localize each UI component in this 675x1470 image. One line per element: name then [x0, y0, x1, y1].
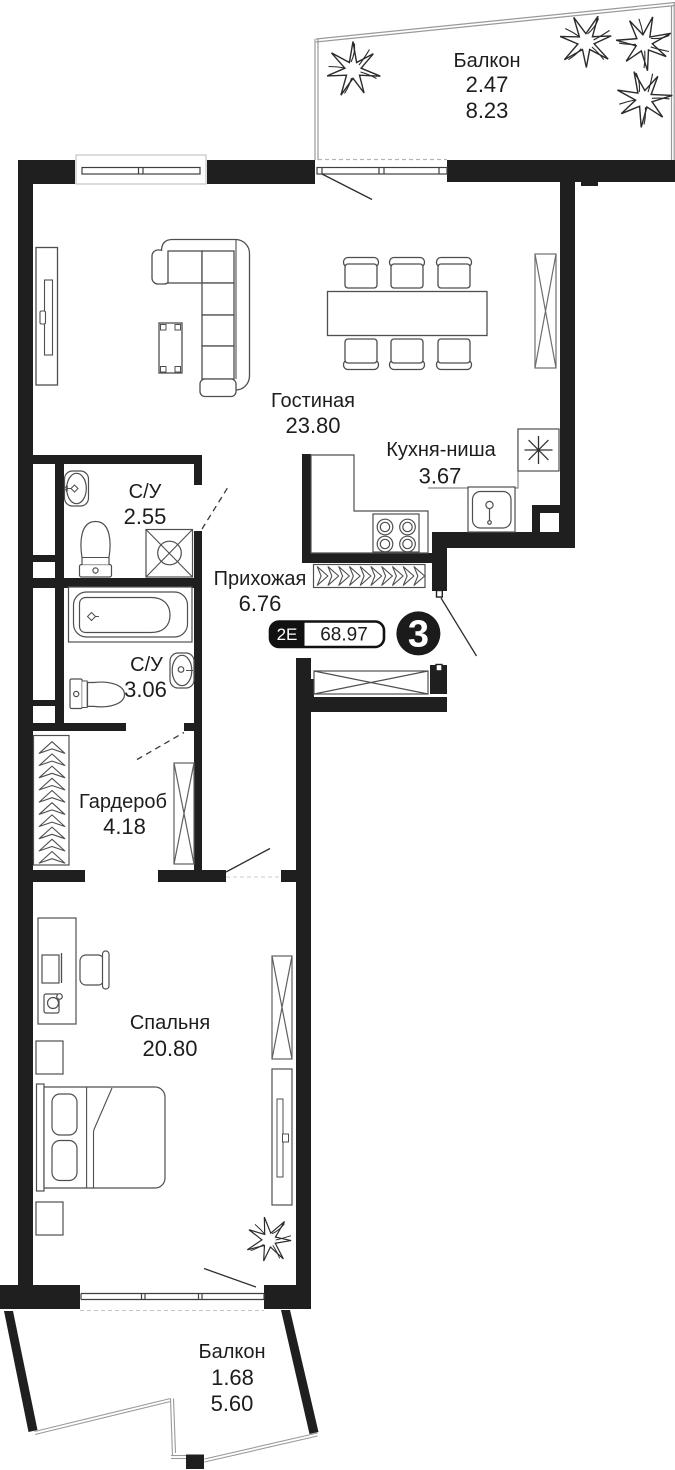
svg-text:Спальня: Спальня — [130, 1012, 210, 1034]
svg-text:2.55: 2.55 — [124, 504, 167, 529]
svg-text:6.76: 6.76 — [239, 591, 282, 616]
svg-text:Балкон: Балкон — [198, 1341, 265, 1363]
svg-text:4.18: 4.18 — [103, 814, 146, 839]
svg-text:23.80: 23.80 — [285, 413, 340, 438]
svg-text:8.23: 8.23 — [466, 98, 509, 123]
svg-text:1.68: 1.68 — [211, 1365, 254, 1390]
svg-text:Прихожая: Прихожая — [214, 568, 307, 590]
svg-text:20.80: 20.80 — [142, 1036, 197, 1061]
svg-text:3: 3 — [408, 614, 429, 656]
svg-text:68.97: 68.97 — [320, 625, 368, 646]
svg-text:5.60: 5.60 — [211, 1391, 254, 1416]
svg-text:Гардероб: Гардероб — [79, 791, 167, 813]
svg-text:3.06: 3.06 — [124, 677, 167, 702]
svg-text:Балкон: Балкон — [453, 50, 520, 72]
svg-text:С/У: С/У — [130, 654, 163, 676]
svg-text:3.67: 3.67 — [419, 464, 462, 489]
svg-text:С/У: С/У — [129, 481, 162, 503]
svg-text:2.47: 2.47 — [466, 72, 509, 97]
svg-text:Кухня-ниша: Кухня-ниша — [386, 439, 496, 461]
svg-text:Гостиная: Гостиная — [271, 390, 355, 412]
svg-text:2Е: 2Е — [277, 625, 298, 644]
